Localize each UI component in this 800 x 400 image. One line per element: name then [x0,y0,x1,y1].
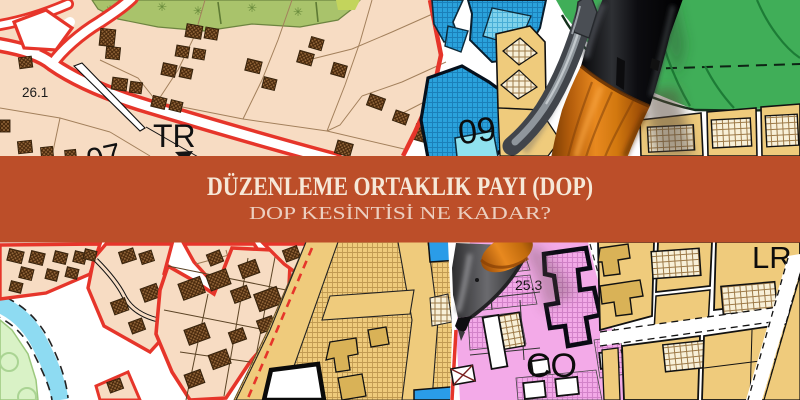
svg-text:✳: ✳ [247,1,257,15]
svg-text:09: 09 [456,110,498,152]
svg-text:CO: CO [526,347,577,385]
svg-text:DÜZENLEME ORTAKLIK PAYI (DOP): DÜZENLEME ORTAKLIK PAYI (DOP) [207,172,593,201]
svg-text:✳: ✳ [293,5,303,19]
svg-text:TR: TR [153,118,196,154]
svg-text:26.1: 26.1 [22,85,48,100]
svg-text:DOP KESİNTİSİ NE KADAR?: DOP KESİNTİSİ NE KADAR? [249,203,551,223]
svg-text:✳: ✳ [157,0,167,14]
